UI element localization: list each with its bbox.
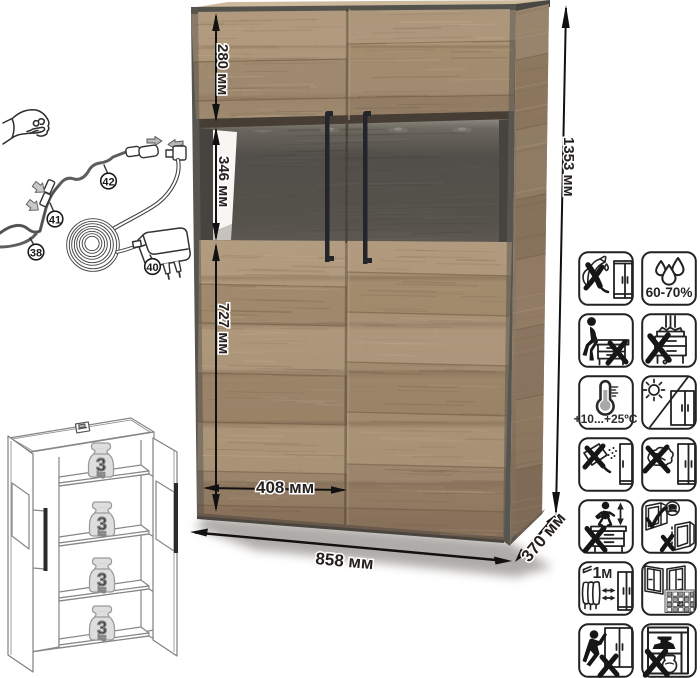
svg-text:41: 41: [49, 215, 61, 227]
svg-text:727 мм: 727 мм: [215, 303, 232, 354]
svg-text:1353 мм: 1353 мм: [560, 137, 577, 197]
svg-text:346 мм: 346 мм: [215, 156, 232, 207]
svg-text:kg: kg: [98, 633, 107, 642]
svg-text:280 мм: 280 мм: [214, 44, 231, 95]
svg-text:408 мм: 408 мм: [256, 478, 314, 497]
svg-text:21: 21: [677, 601, 685, 608]
svg-text:42: 42: [102, 177, 114, 189]
svg-text:kg: kg: [97, 470, 106, 479]
svg-text:kg: kg: [98, 529, 107, 538]
svg-text:+10...+25ºC: +10...+25ºC: [574, 412, 638, 426]
svg-text:60-70%: 60-70%: [646, 285, 693, 300]
svg-text:858 мм: 858 мм: [315, 549, 375, 573]
svg-text:1M: 1M: [593, 565, 613, 582]
svg-text:40: 40: [146, 262, 158, 274]
svg-text:kg: kg: [98, 585, 107, 594]
svg-text:38: 38: [30, 248, 42, 260]
